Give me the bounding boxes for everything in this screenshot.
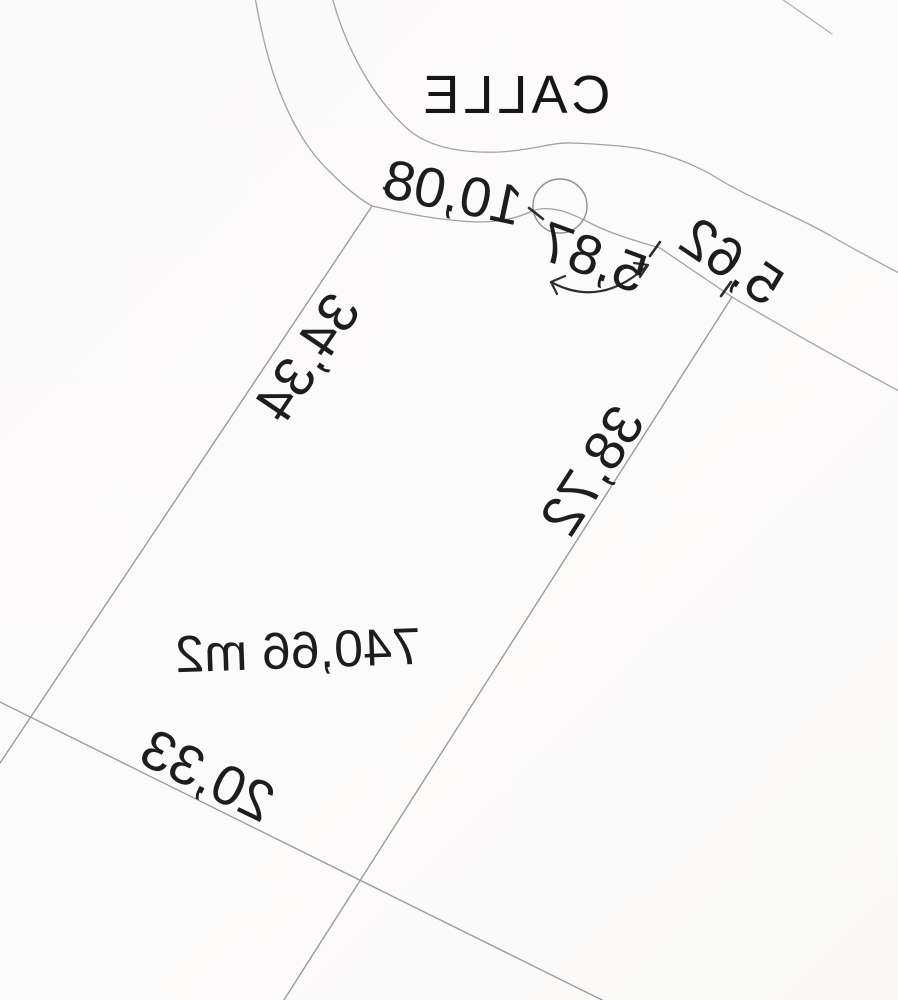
dim-label-5-87: 5,87 xyxy=(531,209,655,305)
mirror-group: CALLE 10,08 5,87 5,62 34,34 38,72 740,66… xyxy=(0,0,898,1000)
rear-boundary-line xyxy=(0,701,604,1000)
street-name-label: CALLE xyxy=(419,65,610,125)
dim-label-34-34: 34,34 xyxy=(242,281,373,432)
plan-drawing: CALLE 10,08 5,87 5,62 34,34 38,72 740,66… xyxy=(0,0,898,1000)
survey-plan: CALLE 10,08 5,87 5,62 34,34 38,72 740,66… xyxy=(0,0,898,1000)
dim-label-38-72: 38,72 xyxy=(527,394,656,546)
parcel-area-label: 740,66 m2 xyxy=(174,618,422,685)
dim-label-10-08: 10,08 xyxy=(378,147,528,238)
dim-label-20-33: 20,33 xyxy=(131,716,285,834)
adjacent-boundary-segment xyxy=(779,0,832,34)
dim-label-5-62: 5,62 xyxy=(669,204,795,317)
